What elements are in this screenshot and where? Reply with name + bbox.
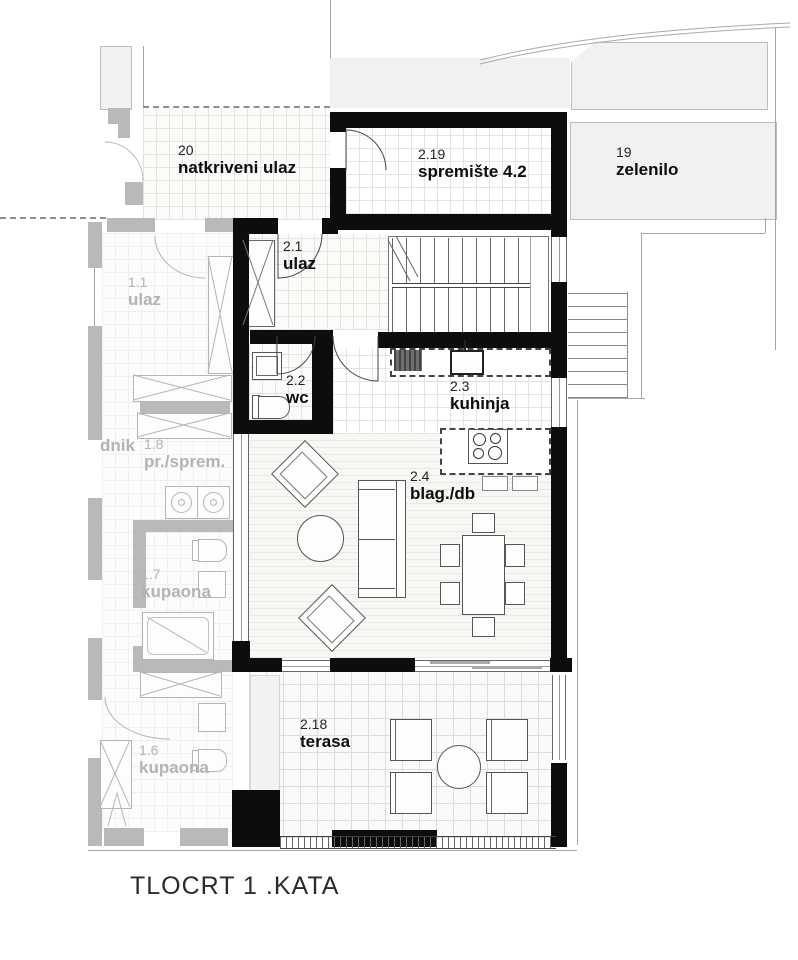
line xyxy=(568,398,645,399)
shaft-x xyxy=(208,256,234,374)
wall-segment xyxy=(233,218,249,434)
bar-stool xyxy=(512,476,538,491)
wall-segment-gray xyxy=(125,182,143,205)
terrace-table xyxy=(437,745,481,789)
wall-segment-gray xyxy=(140,660,233,672)
kitchen-tap xyxy=(464,340,466,350)
stair-outline xyxy=(388,236,549,333)
room-label-hodnik: dnik xyxy=(100,436,135,456)
line xyxy=(765,218,766,233)
closet-x-gray xyxy=(100,740,132,809)
wall-segment-gray xyxy=(104,828,144,846)
wall-segment-gray xyxy=(88,326,102,440)
bathtub xyxy=(142,612,214,660)
dashed-property-line xyxy=(0,217,106,219)
wall-segment xyxy=(551,112,567,234)
wall-segment xyxy=(551,763,567,847)
line xyxy=(641,233,642,398)
closet-x-gray xyxy=(140,672,222,698)
bar-stool xyxy=(482,476,508,491)
wall-segment xyxy=(551,282,567,378)
wall-segment xyxy=(312,330,333,434)
terrace-railing xyxy=(280,836,556,849)
dining-table xyxy=(462,535,505,615)
room-label-blag-db: 2.4 blag./db xyxy=(410,468,475,504)
wall-segment-gray xyxy=(88,498,102,580)
sliding-door-panel xyxy=(430,661,490,664)
room-label-natkriveni-ulaz: 20 natkriveni ulaz xyxy=(178,142,296,178)
cooktop xyxy=(468,429,508,464)
kitchen-appliance xyxy=(394,350,422,371)
room-label-ulaz: 2.1 ulaz xyxy=(283,238,316,274)
room-label-pr-sprem: 1.8 pr./sprem. xyxy=(144,436,225,472)
sliding-door-panel xyxy=(472,666,542,669)
roof-band xyxy=(571,42,768,110)
wall-segment xyxy=(322,218,338,234)
wall-segment xyxy=(330,112,567,128)
dining-chair xyxy=(440,544,460,567)
line xyxy=(330,0,331,58)
dining-chair xyxy=(505,582,525,605)
wall-segment-gray xyxy=(108,108,130,124)
room-label-spremiste: 2.19 spremište 4.2 xyxy=(418,146,527,182)
wall-segment xyxy=(250,330,313,344)
window xyxy=(233,434,249,641)
room-label-kupaona-16: 1.6 kupaona xyxy=(139,742,209,778)
washing-machine xyxy=(165,486,198,519)
drawing-title: TLOCRT 1 .KATA xyxy=(130,872,339,901)
terrace-chair xyxy=(390,719,432,761)
wall-segment-gray xyxy=(88,222,102,268)
wall-segment xyxy=(378,332,567,348)
line xyxy=(641,233,765,234)
terrace-chair xyxy=(390,772,432,814)
wall-segment xyxy=(330,658,415,672)
dining-chair xyxy=(472,513,495,533)
dining-chair xyxy=(505,544,525,567)
terrace-left-strip xyxy=(250,675,280,794)
wall-segment-gray xyxy=(140,520,233,532)
wall-segment xyxy=(551,218,567,237)
line xyxy=(775,28,776,350)
dining-chair xyxy=(472,617,495,637)
floor-plan: 20 natkriveni ulaz 2.19 spremište 4.2 19… xyxy=(0,0,798,960)
room-label-zelenilo: 19 zelenilo xyxy=(616,144,678,180)
wall-segment xyxy=(232,790,280,847)
dashed-canopy-edge xyxy=(143,106,330,108)
window xyxy=(551,378,567,427)
sofa xyxy=(358,480,406,598)
window xyxy=(282,660,330,672)
ground-line xyxy=(88,850,577,851)
dining-chair xyxy=(440,582,460,605)
terrace-chair xyxy=(486,719,528,761)
closet-x-gray xyxy=(133,375,232,402)
wall-segment xyxy=(232,641,250,672)
door-arc-gray xyxy=(105,142,143,181)
washing-machine xyxy=(197,486,230,519)
terrace-chair xyxy=(486,772,528,814)
wall-segment xyxy=(250,658,282,672)
room-label-terasa: 2.18 terasa xyxy=(300,716,350,752)
coffee-table xyxy=(297,515,344,562)
line xyxy=(577,400,578,845)
wall-segment xyxy=(330,112,346,132)
sink-gray xyxy=(198,703,226,732)
wall-segment xyxy=(550,658,572,672)
toilet-bowl-gray xyxy=(198,539,227,562)
wall-segment xyxy=(233,420,333,434)
room-label-kupaona-17: 1.7 kupaona xyxy=(141,566,211,602)
window xyxy=(551,237,567,282)
stair-landing-line xyxy=(530,237,531,331)
exterior-stair-treads xyxy=(568,292,628,398)
wc-sink xyxy=(252,352,282,380)
wall-segment-gray xyxy=(118,124,130,138)
wall-segment xyxy=(330,214,567,230)
wall-segment xyxy=(551,427,567,658)
kitchen-sink xyxy=(450,350,484,375)
wall-segment-gray xyxy=(107,218,155,232)
site-strip-topleft xyxy=(100,46,132,110)
wall-segment-gray xyxy=(205,218,233,232)
site-band-top xyxy=(330,58,570,108)
room-label-kuhinja: 2.3 kuhinja xyxy=(450,378,510,414)
room-label-ulaz-11: 1.1 ulaz xyxy=(128,274,161,310)
terrace-glazing xyxy=(552,675,566,760)
wall-segment-gray xyxy=(88,638,102,700)
line xyxy=(94,262,95,326)
wall-segment-gray xyxy=(180,828,228,846)
room-label-wc: 2.2 wc xyxy=(286,372,309,408)
line xyxy=(143,46,144,108)
